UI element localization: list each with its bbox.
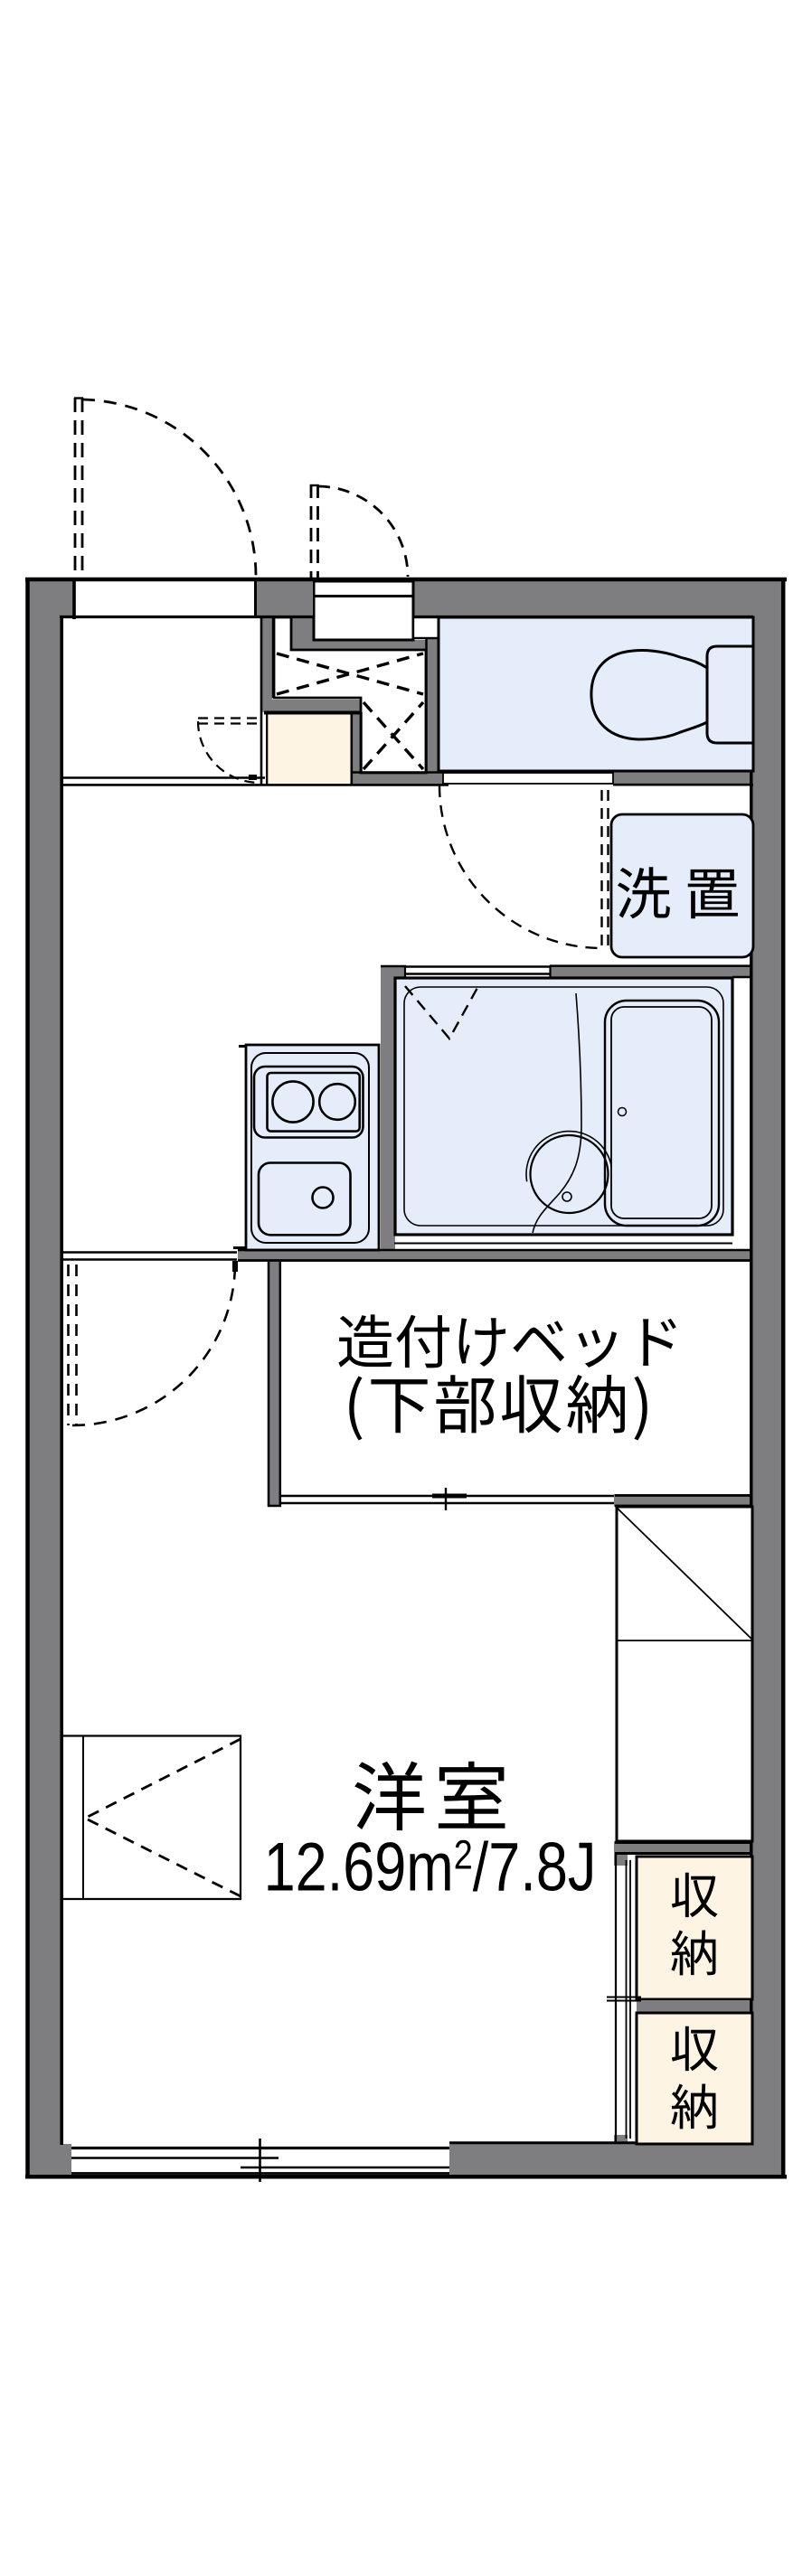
svg-text:12.69m2/7.8J: 12.69m2/7.8J (264, 1829, 597, 1905)
